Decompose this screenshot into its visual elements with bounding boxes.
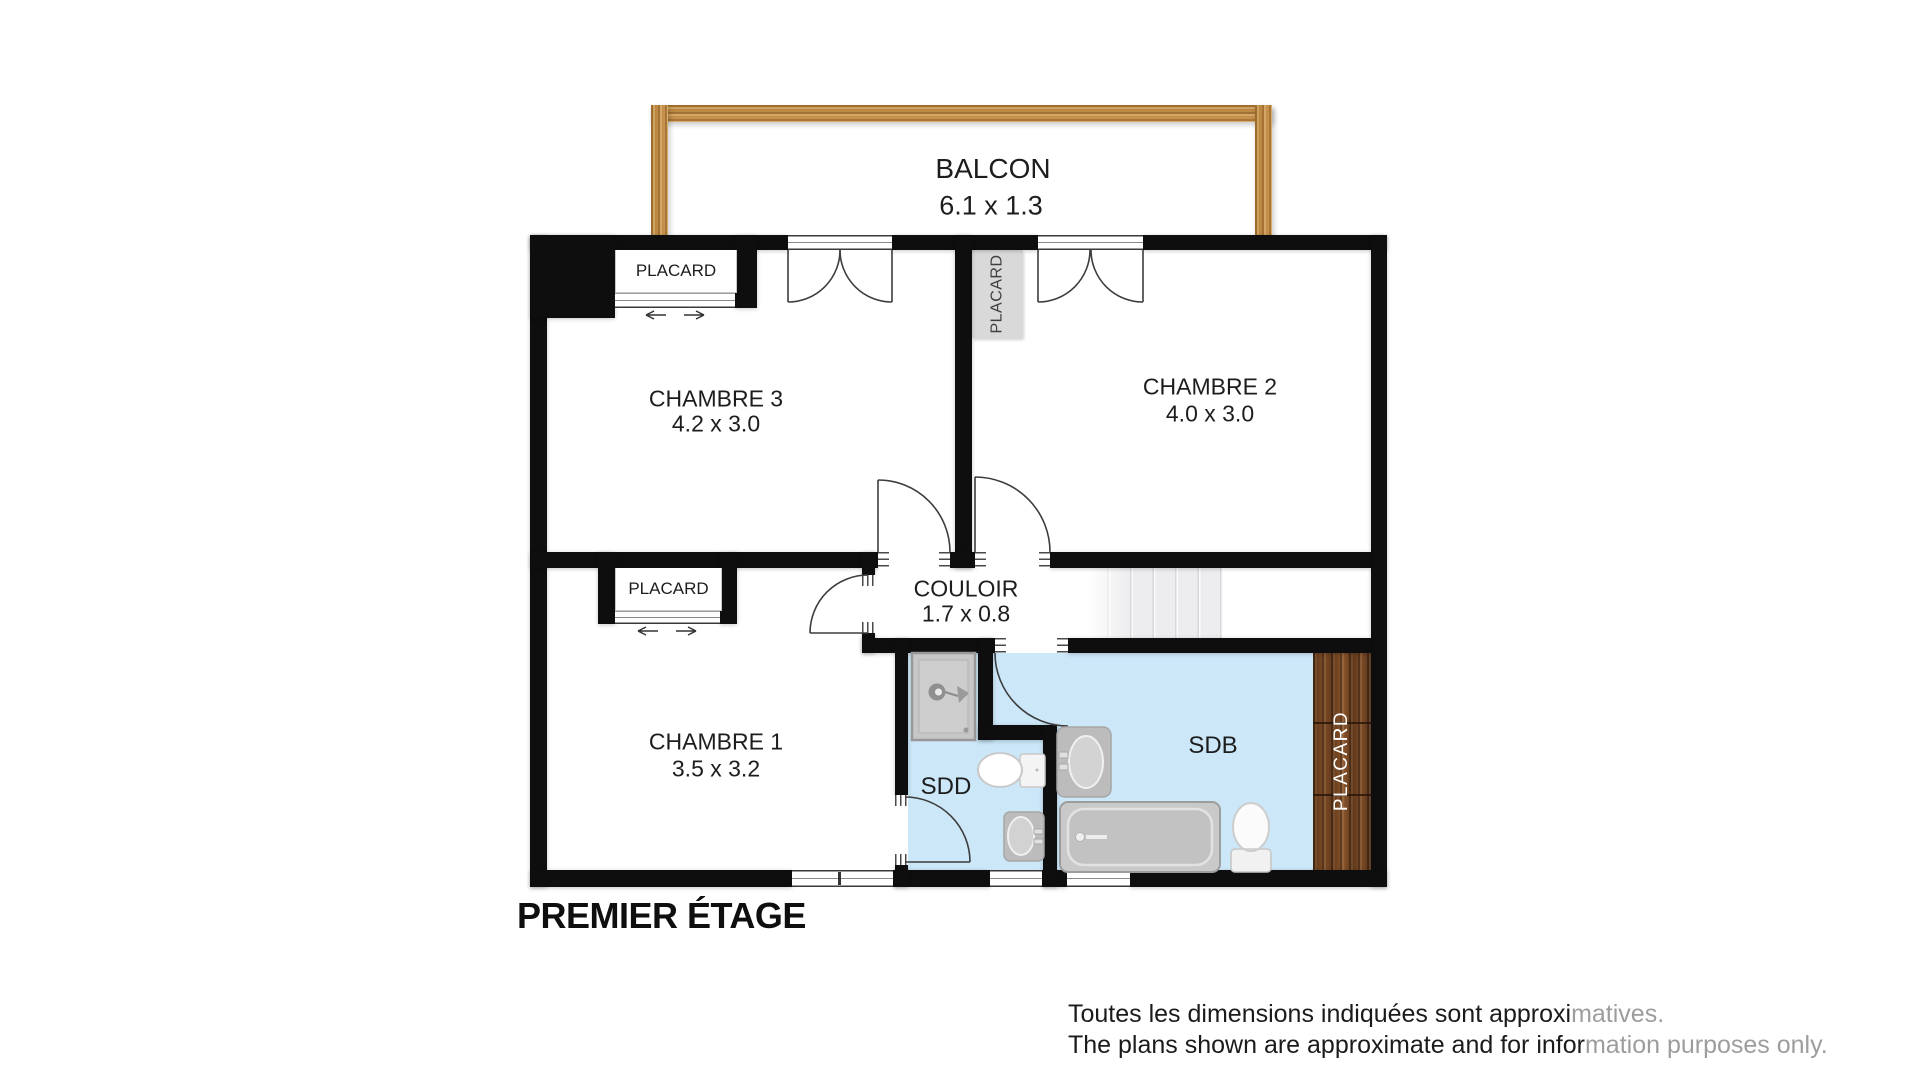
sliding-arrows-closet1 <box>646 311 704 319</box>
disclaimer-line2: The plans shown are approximate and for … <box>1068 1030 1828 1061</box>
plan-symbols-layer <box>0 0 1920 1080</box>
disclaimer-line1-dark: Toutes les dimensions indiquées sont app… <box>1068 1000 1571 1028</box>
toilet-sdd-icon <box>978 753 1045 787</box>
disclaimer-line1: Toutes les dimensions indiquées sont app… <box>1068 999 1828 1030</box>
disclaimer-line2-gray: mation purposes only. <box>1585 1031 1828 1059</box>
disclaimer-text: Toutes les dimensions indiquées sont app… <box>1068 999 1828 1061</box>
door-swing-chambre2 <box>975 477 1050 552</box>
french-door-swing-chambre2 <box>1038 250 1143 302</box>
disclaimer-line1-gray: matives. <box>1571 1000 1664 1028</box>
door-swing-sdd <box>905 797 970 862</box>
floor-plan-page: BALCON 6.1 x 1.3 PLACARD PLACA <box>0 0 1920 1080</box>
sink-sdb-icon <box>1057 727 1111 797</box>
bathtub-icon <box>1060 802 1220 872</box>
sliding-arrows-closet2 <box>638 627 696 635</box>
sink-sdd-icon <box>1004 812 1044 861</box>
page-title: PREMIER ÉTAGE <box>517 895 806 937</box>
shower-icon <box>912 653 975 740</box>
door-swing-sdb <box>995 653 1068 726</box>
door-swing-chambre3 <box>878 480 950 552</box>
door-swing-chambre1 <box>810 575 868 633</box>
toilet-sdb-icon <box>1231 803 1271 872</box>
disclaimer-line2-dark: The plans shown are approximate and for … <box>1068 1031 1585 1059</box>
french-door-swing-chambre3 <box>788 250 892 302</box>
